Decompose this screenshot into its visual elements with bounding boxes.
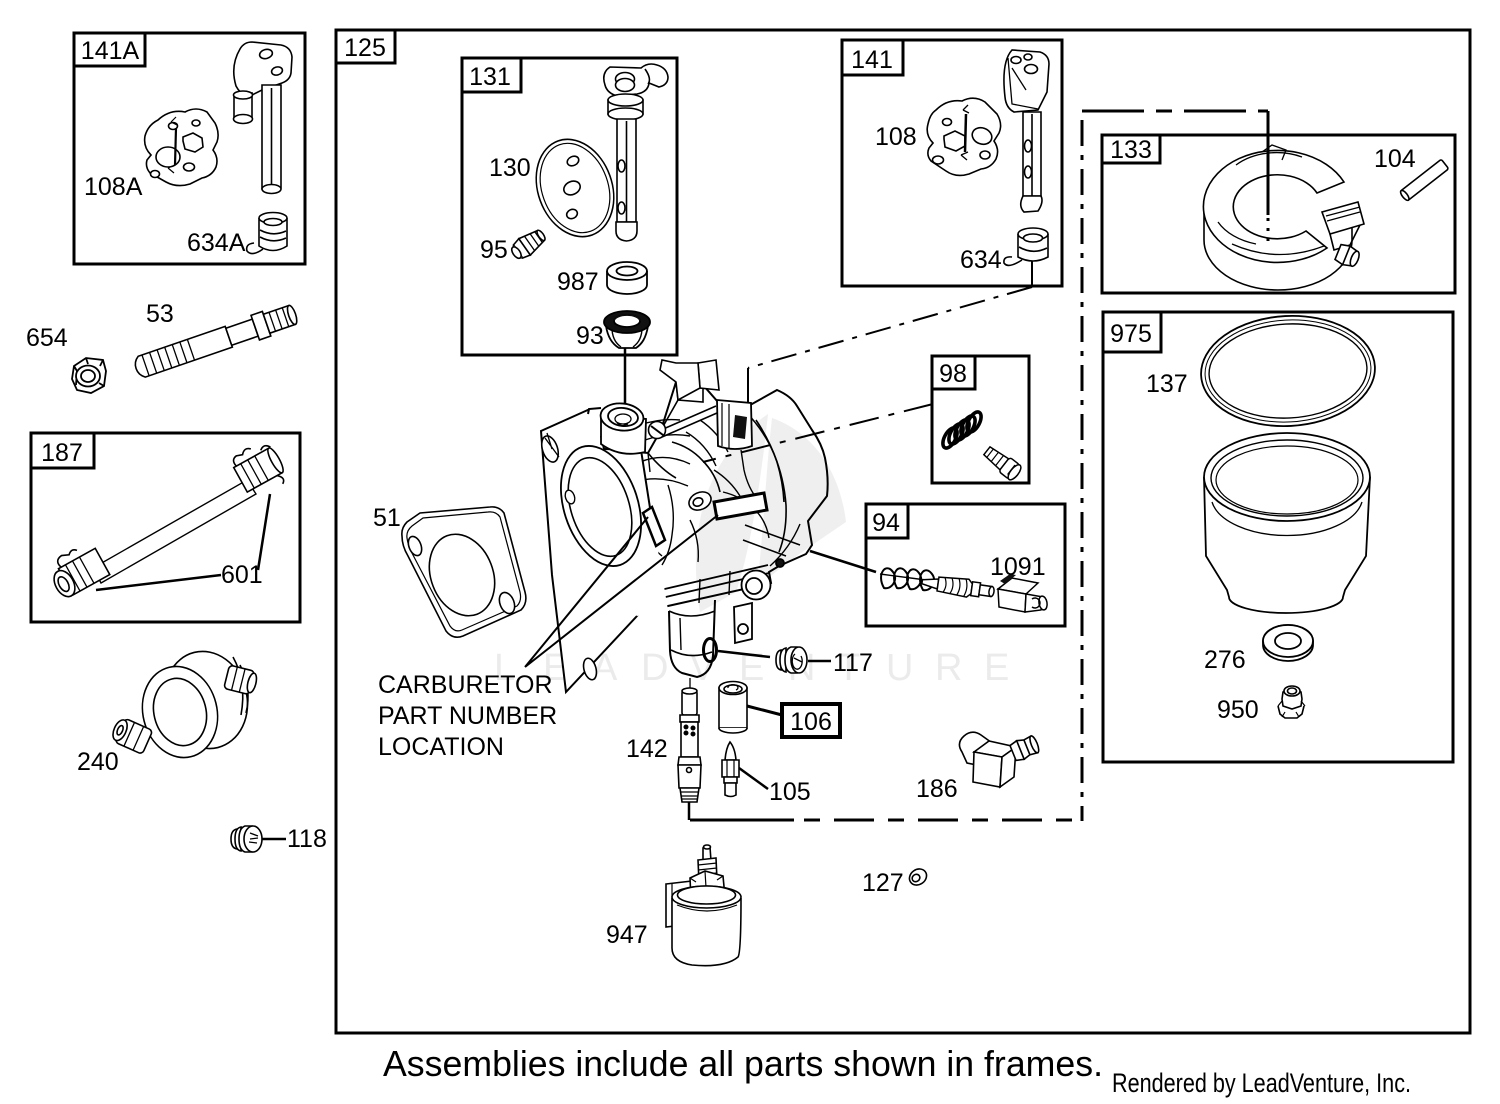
svg-text:137: 137 xyxy=(1146,370,1188,398)
svg-text:987: 987 xyxy=(557,268,599,296)
svg-text:141A: 141A xyxy=(81,37,140,65)
svg-text:187: 187 xyxy=(41,439,83,467)
svg-text:654: 654 xyxy=(26,324,68,352)
svg-text:93: 93 xyxy=(576,322,604,350)
svg-text:950: 950 xyxy=(1217,696,1259,724)
svg-text:131: 131 xyxy=(469,63,511,91)
svg-text:125: 125 xyxy=(344,34,386,62)
svg-text:634A: 634A xyxy=(187,229,246,257)
svg-text:108A: 108A xyxy=(84,173,143,201)
svg-text:95: 95 xyxy=(480,236,508,264)
svg-text:106: 106 xyxy=(790,708,832,736)
svg-text:130: 130 xyxy=(489,154,531,182)
svg-text:D: D xyxy=(641,647,668,689)
svg-text:118: 118 xyxy=(287,825,327,853)
svg-text:276: 276 xyxy=(1204,646,1246,674)
svg-text:PART NUMBER: PART NUMBER xyxy=(378,702,557,730)
svg-text:108: 108 xyxy=(875,123,917,151)
svg-text:634: 634 xyxy=(960,246,1002,274)
svg-text:975: 975 xyxy=(1110,320,1152,348)
svg-text:Assemblies include all parts s: Assemblies include all parts shown in fr… xyxy=(383,1043,1103,1084)
svg-text:53: 53 xyxy=(146,300,174,328)
svg-text:CARBURETOR: CARBURETOR xyxy=(378,671,553,699)
svg-text:Rendered by LeadVenture, Inc.: Rendered by LeadVenture, Inc. xyxy=(1112,1068,1411,1098)
svg-text:117: 117 xyxy=(833,649,873,677)
svg-text:133: 133 xyxy=(1110,136,1152,164)
svg-text:240: 240 xyxy=(77,748,119,776)
svg-text:LOCATION: LOCATION xyxy=(378,733,504,761)
svg-text:U: U xyxy=(886,647,913,689)
svg-text:186: 186 xyxy=(916,775,958,803)
svg-text:51: 51 xyxy=(373,504,401,532)
svg-text:R: R xyxy=(935,647,962,689)
svg-text:105: 105 xyxy=(769,778,811,806)
svg-text:1091: 1091 xyxy=(990,553,1046,581)
svg-text:94: 94 xyxy=(872,509,900,537)
svg-text:947: 947 xyxy=(606,921,648,949)
svg-text:601: 601 xyxy=(221,561,263,589)
svg-text:127: 127 xyxy=(862,869,904,897)
svg-text:104: 104 xyxy=(1374,145,1416,173)
svg-text:141: 141 xyxy=(851,46,893,74)
svg-text:98: 98 xyxy=(939,360,967,388)
svg-text:E: E xyxy=(984,647,1009,689)
svg-text:142: 142 xyxy=(626,735,668,763)
